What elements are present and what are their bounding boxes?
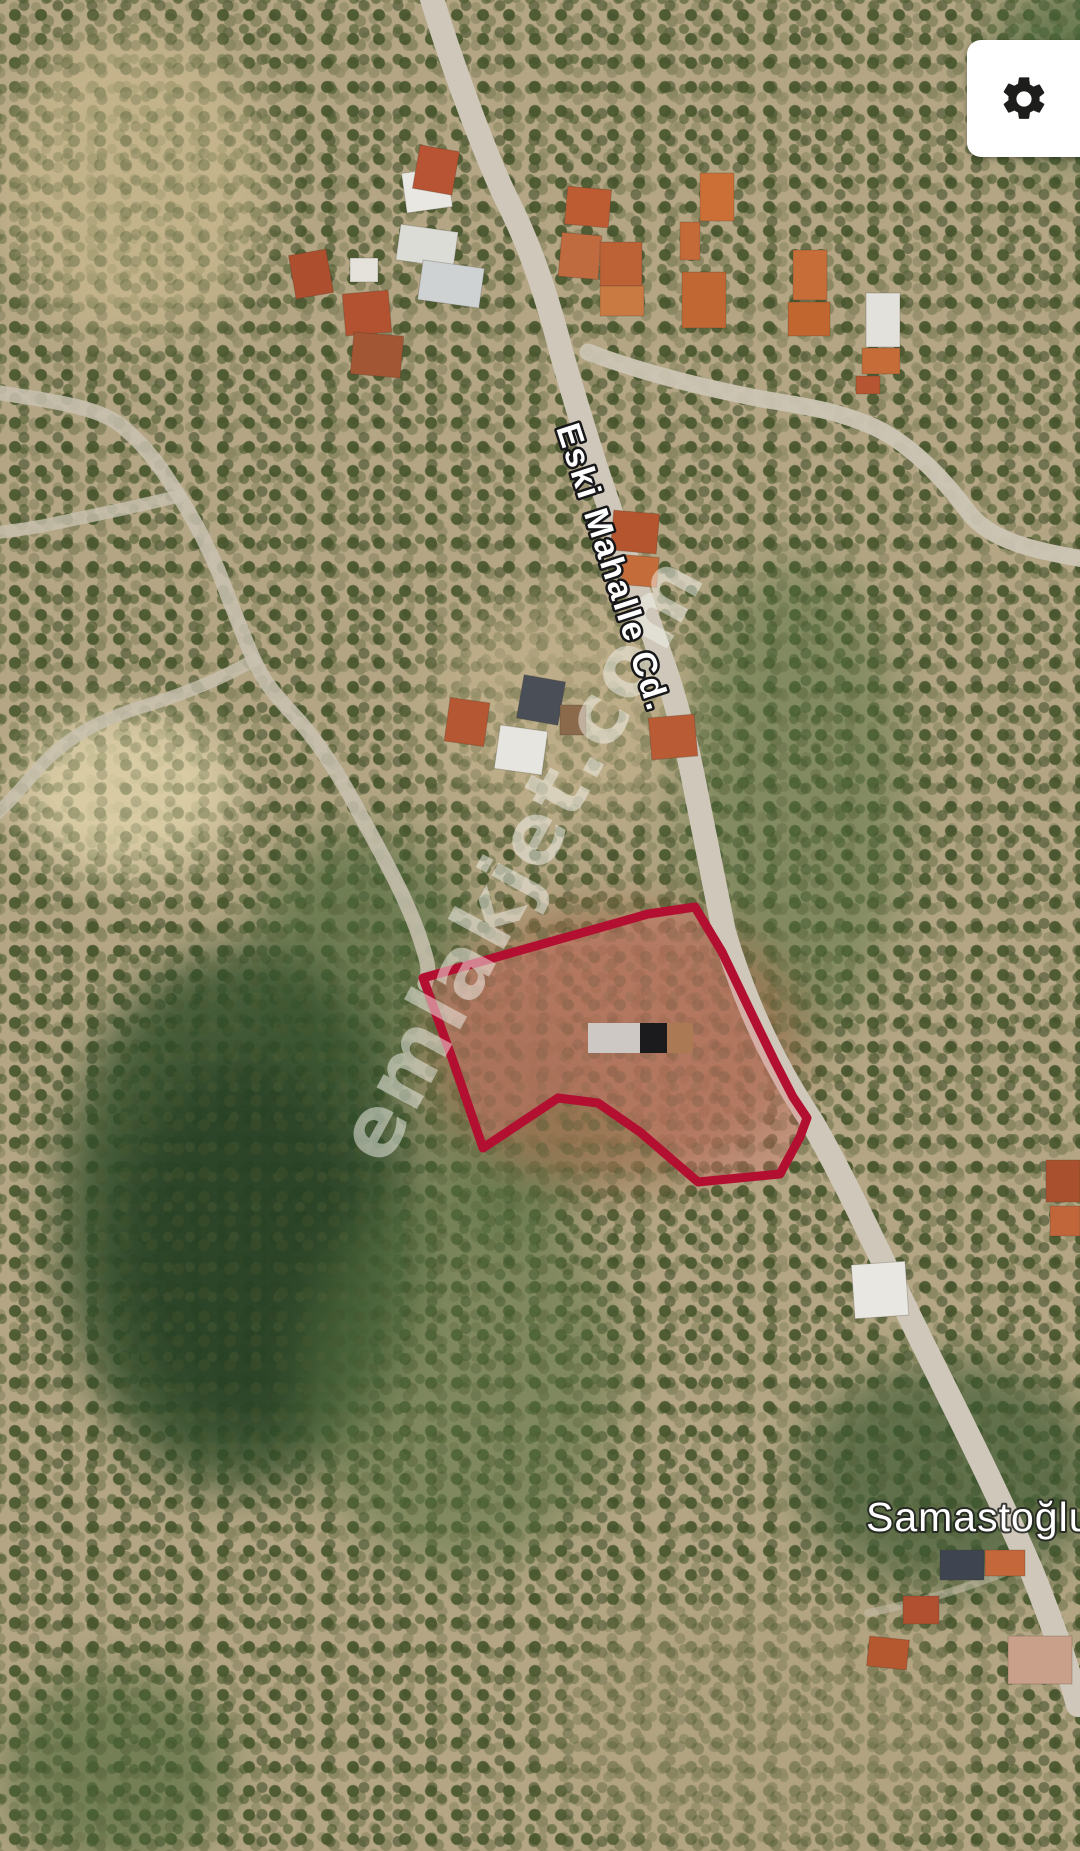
place-name-label: Samastoğlu bbox=[866, 1494, 1080, 1540]
side-road-west bbox=[0, 392, 428, 984]
map-overlay: emlakjet.com Eski Mahalle Cd. Samastoğlu bbox=[0, 0, 1080, 1851]
settings-button[interactable] bbox=[967, 40, 1080, 157]
redacted-label bbox=[588, 1023, 693, 1053]
gear-icon bbox=[998, 73, 1050, 125]
side-road-spur bbox=[0, 496, 179, 533]
branch-road-east bbox=[588, 352, 1080, 559]
side-road-southwest bbox=[0, 660, 254, 816]
map-viewport[interactable]: emlakjet.com Eski Mahalle Cd. Samastoğlu bbox=[0, 0, 1080, 1851]
